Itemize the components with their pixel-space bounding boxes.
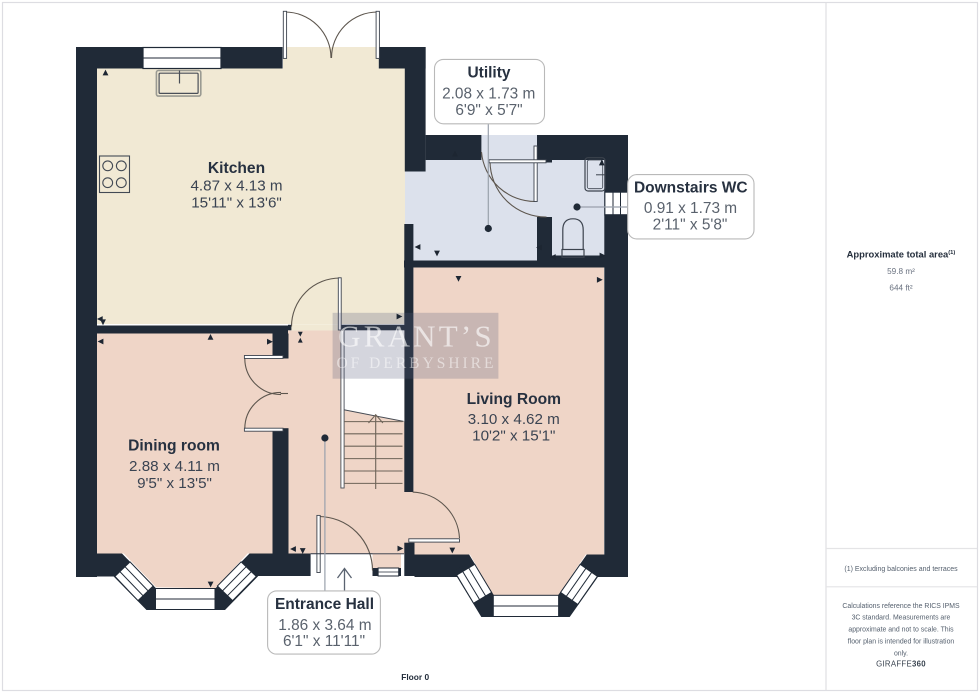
svg-text:approximate and not to scale.: approximate and not to scale. This (848, 627, 954, 634)
svg-text:Downstairs WC: Downstairs WC (634, 180, 748, 197)
svg-text:15'11" x 13'6": 15'11" x 13'6" (191, 195, 282, 212)
svg-text:GIRAFFE360: GIRAFFE360 (876, 660, 926, 669)
svg-text:2'11" x 5'8": 2'11" x 5'8" (653, 217, 728, 234)
svg-text:6'1" x 11'11": 6'1" x 11'11" (283, 633, 365, 650)
svg-text:Living Room: Living Room (467, 391, 561, 408)
svg-text:Approximate total area(1): Approximate total area(1) (847, 249, 956, 260)
svg-text:Calculations reference the RIC: Calculations reference the RICS IPMS (842, 603, 960, 610)
svg-text:59.8 m²: 59.8 m² (887, 267, 915, 276)
svg-text:Kitchen: Kitchen (208, 160, 265, 177)
svg-text:2.88 x 4.11 m: 2.88 x 4.11 m (129, 458, 220, 475)
svg-text:GRANT’S: GRANT’S (338, 319, 495, 354)
svg-text:3C standard. Measurements are: 3C standard. Measurements are (852, 615, 951, 622)
svg-text:9'5" x 13'5": 9'5" x 13'5" (137, 475, 212, 492)
svg-text:6'9" x 5'7": 6'9" x 5'7" (455, 102, 522, 119)
svg-text:only.: only. (894, 650, 908, 657)
svg-text:2.08 x 1.73 m: 2.08 x 1.73 m (442, 85, 535, 102)
svg-text:Entrance Hall: Entrance Hall (275, 596, 374, 613)
svg-text:(1) Excluding balconies and te: (1) Excluding balconies and terraces (844, 566, 958, 573)
svg-text:OF DERBYSHIRE: OF DERBYSHIRE (336, 355, 496, 372)
svg-text:Floor 0: Floor 0 (401, 672, 429, 682)
svg-text:floor plan is intended for ill: floor plan is intended for illustration (848, 639, 955, 646)
svg-text:4.87 x 4.13 m: 4.87 x 4.13 m (190, 178, 282, 195)
svg-text:3.10 x 4.62 m: 3.10 x 4.62 m (468, 411, 560, 428)
svg-text:1.86 x 3.64 m: 1.86 x 3.64 m (278, 617, 371, 634)
svg-text:644 ft²: 644 ft² (889, 284, 912, 293)
svg-text:10'2" x 15'1": 10'2" x 15'1" (472, 428, 555, 445)
svg-text:Utility: Utility (467, 65, 510, 82)
svg-text:Dining room: Dining room (128, 438, 220, 455)
svg-text:0.91 x 1.73 m: 0.91 x 1.73 m (644, 200, 737, 217)
